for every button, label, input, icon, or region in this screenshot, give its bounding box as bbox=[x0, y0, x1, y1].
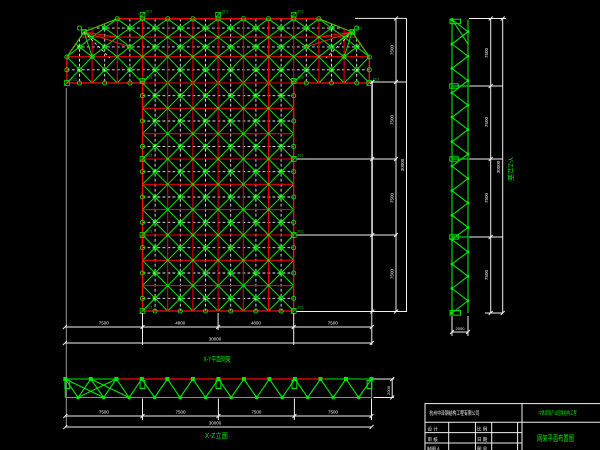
svg-text:ZC1: ZC1 bbox=[146, 9, 153, 13]
svg-text:7500: 7500 bbox=[251, 410, 262, 415]
svg-text:ZC1: ZC1 bbox=[70, 78, 77, 82]
svg-text:30000: 30000 bbox=[209, 421, 222, 426]
svg-text:7500: 7500 bbox=[390, 268, 395, 279]
svg-text:7500: 7500 bbox=[390, 192, 395, 203]
svg-text:7500: 7500 bbox=[390, 44, 395, 55]
svg-text:7500: 7500 bbox=[175, 410, 186, 415]
svg-text:比 例: 比 例 bbox=[477, 426, 488, 433]
svg-text:2000: 2000 bbox=[456, 326, 466, 331]
svg-text:30000: 30000 bbox=[209, 337, 222, 342]
svg-text:X-Z立面: X-Z立面 bbox=[205, 431, 228, 440]
svg-text:ZC1: ZC1 bbox=[146, 76, 153, 80]
svg-text:7500: 7500 bbox=[484, 192, 489, 203]
svg-text:中铁四局产业园钢结构工程: 中铁四局产业园钢结构工程 bbox=[539, 409, 577, 417]
svg-text:X-Y平面网架: X-Y平面网架 bbox=[204, 356, 231, 364]
svg-text:30000: 30000 bbox=[400, 158, 405, 171]
svg-text:Y-Z立面: Y-Z立面 bbox=[507, 157, 516, 182]
svg-text:网架平面布置图: 网架平面布置图 bbox=[537, 433, 574, 443]
svg-text:ZC1: ZC1 bbox=[297, 230, 304, 234]
svg-text:ZC1: ZC1 bbox=[356, 27, 363, 31]
svg-text:7500: 7500 bbox=[99, 410, 110, 415]
svg-text:ZC1: ZC1 bbox=[146, 306, 153, 310]
svg-text:ZC1: ZC1 bbox=[146, 230, 153, 234]
svg-text:ZC1: ZC1 bbox=[297, 154, 304, 158]
svg-text:杭州中泽钢结构工程有限公司: 杭州中泽钢结构工程有限公司 bbox=[429, 409, 479, 417]
svg-text:7500: 7500 bbox=[484, 269, 489, 280]
svg-text:ZC1: ZC1 bbox=[297, 9, 304, 13]
svg-text:7500: 7500 bbox=[484, 47, 489, 58]
svg-text:设 计: 设 计 bbox=[428, 426, 439, 433]
svg-text:7500: 7500 bbox=[328, 410, 339, 415]
svg-text:7500: 7500 bbox=[484, 116, 489, 127]
svg-text:审 核: 审 核 bbox=[428, 436, 439, 443]
svg-text:7500: 7500 bbox=[390, 114, 395, 125]
svg-text:图 号: 图 号 bbox=[477, 447, 488, 450]
svg-text:7500: 7500 bbox=[99, 321, 110, 326]
svg-text:7500: 7500 bbox=[328, 321, 339, 326]
svg-text:2000: 2000 bbox=[386, 385, 391, 395]
svg-text:4800: 4800 bbox=[175, 321, 186, 326]
svg-text:ZC1: ZC1 bbox=[297, 76, 304, 80]
svg-text:ZC1: ZC1 bbox=[88, 27, 95, 31]
svg-text:30000: 30000 bbox=[496, 160, 501, 173]
svg-text:4800: 4800 bbox=[251, 321, 262, 326]
svg-text:ZC1: ZC1 bbox=[297, 306, 304, 310]
svg-text:ZC1: ZC1 bbox=[146, 154, 153, 158]
svg-text:制图人: 制图人 bbox=[427, 446, 441, 450]
svg-text:ZC1: ZC1 bbox=[222, 9, 229, 13]
